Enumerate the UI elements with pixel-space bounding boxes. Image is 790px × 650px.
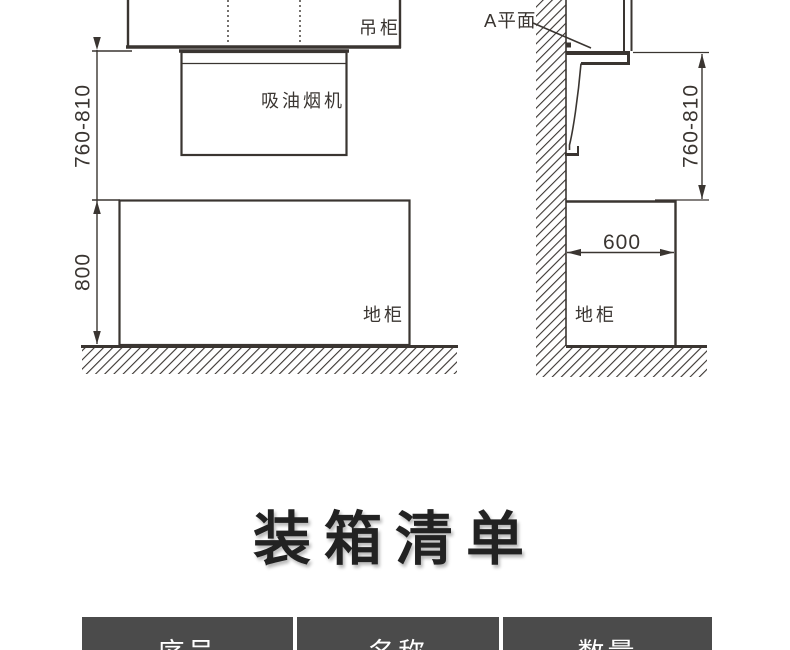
dim-base-height-front: 800	[72, 253, 95, 291]
ground-front	[81, 347, 458, 375]
side-dimension-height: 760-810	[633, 53, 709, 201]
wall-cabinet-side	[624, 0, 632, 51]
front-dimensions: 760-810 800	[72, 37, 133, 344]
range-hood-label: 吸油烟机	[261, 91, 345, 111]
arrow-left-icon	[567, 249, 581, 256]
a-plane-label: A平面	[484, 10, 536, 31]
wall-cabinet-front: 吊柜	[126, 0, 401, 47]
dim-base-depth: 600	[603, 231, 641, 254]
side-dimension-depth: 600	[567, 231, 674, 256]
range-hood-front: 吸油烟机	[179, 51, 349, 155]
packing-list-title: 装箱清单	[0, 492, 790, 576]
base-cabinet-side-label: 地柜	[575, 305, 617, 325]
base-cabinet-side: 地柜	[566, 202, 676, 346]
column-header-name: 名称	[297, 617, 499, 650]
arrow-down-icon	[698, 185, 706, 199]
wall-cabinet-label: 吊柜	[359, 18, 401, 38]
manual-page: 吊柜 吸油烟机 地柜	[0, 0, 790, 650]
leader-dot-icon	[566, 43, 571, 48]
dim-hood-height-front: 760-810	[72, 84, 95, 168]
arrow-up-icon	[93, 201, 101, 214]
arrow-right-icon	[660, 249, 674, 256]
column-header-quantity: 数量	[503, 617, 712, 650]
column-header-serial: 序号	[82, 617, 293, 650]
arrow-down-icon	[93, 37, 101, 50]
arrow-up-icon	[698, 54, 706, 68]
base-cabinet-front: 地柜	[120, 201, 410, 346]
packing-list-table-header: 序号 名称 数量	[82, 617, 715, 650]
wall-side	[536, 0, 566, 377]
side-view-diagram: A平面 760-810 地柜	[484, 0, 709, 377]
front-view-diagram: 吊柜 吸油烟机 地柜	[72, 0, 459, 374]
dim-hood-height-side: 760-810	[680, 84, 703, 168]
range-hood-side	[565, 51, 629, 155]
ground-side	[566, 347, 707, 378]
arrow-down-icon	[93, 331, 101, 344]
installation-diagram: 吊柜 吸油烟机 地柜	[0, 0, 790, 420]
base-cabinet-front-label: 地柜	[363, 305, 405, 325]
